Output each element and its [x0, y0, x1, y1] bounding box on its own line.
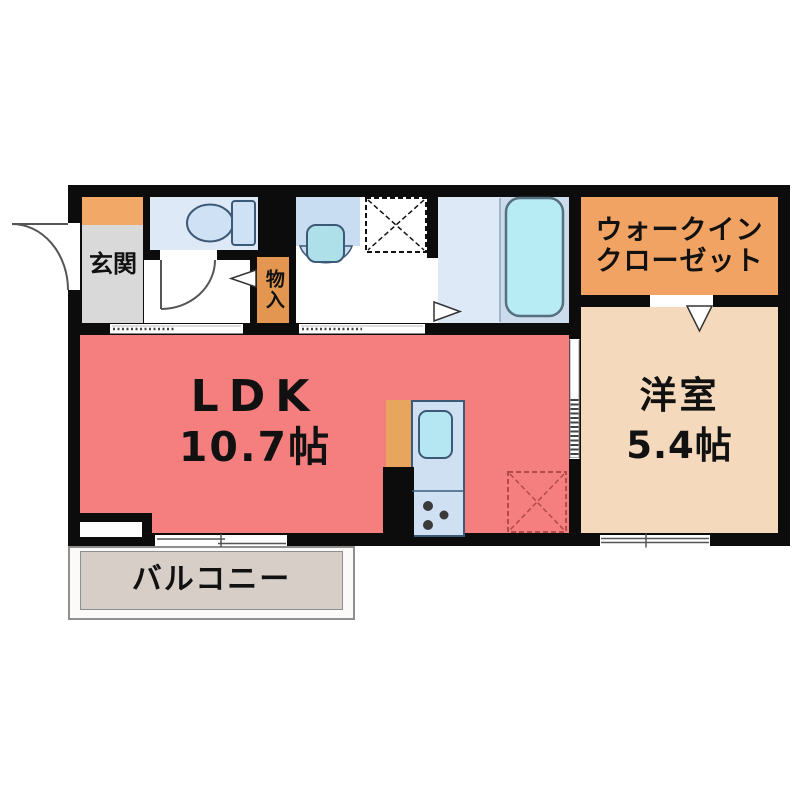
bathtub-area-floor — [500, 197, 569, 323]
western-room-label-box: 洋室 — [581, 374, 778, 418]
western-room-label: 洋室 — [640, 375, 720, 418]
room-washroom — [296, 197, 427, 323]
entrance-door-arc — [12, 224, 68, 290]
kitchen-unit — [411, 400, 465, 537]
closet-doorway — [650, 295, 713, 307]
entrance-label-box: 玄関 — [78, 250, 148, 280]
walk-in-closet-label-box: ウォークイン クローゼット — [581, 205, 778, 287]
ldk-label: LDK — [191, 372, 320, 423]
room-balcony: バルコニー — [80, 551, 343, 610]
ldk-side-window — [80, 522, 142, 537]
storage-label-box: 物入 — [257, 258, 289, 322]
western-room-size-box: 5.4帖 — [581, 424, 778, 468]
entrance-shoe-cabinet — [82, 197, 143, 225]
western-room-size-label: 5.4帖 — [626, 425, 733, 468]
ldk-size-label: 10.7帖 — [179, 424, 331, 471]
balcony-label: バルコニー — [132, 563, 291, 598]
balcony-sliding-door-opening — [155, 535, 287, 546]
ldk-label-box: LDK — [110, 372, 400, 422]
room-toilet — [150, 197, 258, 250]
room-western — [581, 307, 778, 533]
walk-in-closet-label-line2: クローゼット — [596, 246, 764, 277]
bathroom-doorway — [427, 258, 438, 323]
western-window-opening — [600, 535, 710, 547]
entrance-label: 玄関 — [89, 251, 137, 279]
ldk-size-box: 10.7帖 — [110, 424, 400, 472]
toilet-doorway — [160, 250, 217, 261]
storage-label: 物入 — [262, 269, 284, 311]
hallway — [144, 260, 250, 323]
kitchen-wall-stub — [383, 467, 414, 546]
floor-plan: バルコニー — [0, 0, 800, 800]
walk-in-closet-label-line1: ウォークイン — [596, 215, 764, 246]
